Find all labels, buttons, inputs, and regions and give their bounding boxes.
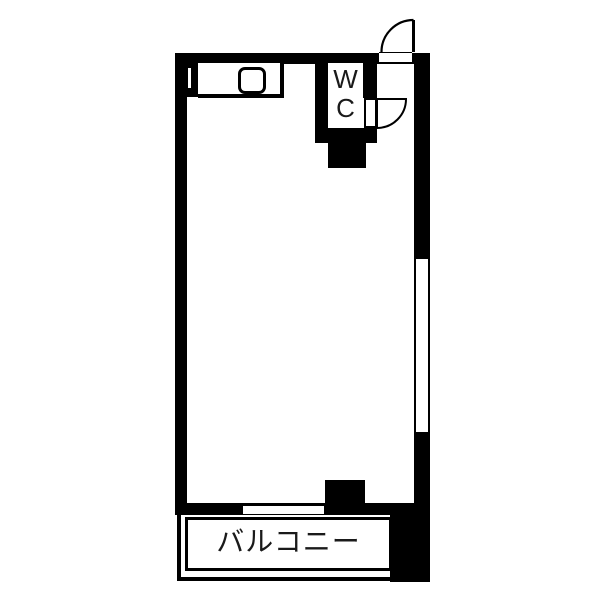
wc-wall-bottom	[315, 128, 377, 143]
wc-door-arc-icon	[377, 99, 406, 128]
kitchen-sink	[238, 67, 266, 94]
wc-room: W C	[328, 63, 363, 128]
wc-duct-pillar	[328, 143, 366, 168]
balcony-opening	[242, 505, 325, 515]
wc-label-line2: C	[336, 94, 355, 123]
pillar	[325, 480, 365, 504]
balcony-label: バルコニー	[216, 520, 360, 560]
window	[416, 259, 428, 432]
wc-door-leaf	[364, 98, 377, 128]
wc-wall-right	[363, 63, 377, 98]
wall-marker	[188, 68, 192, 88]
entrance-door-arc-icon	[382, 20, 414, 52]
floorplan-canvas: W C バルコニー	[0, 0, 600, 600]
wc-label-line1: W	[333, 65, 358, 94]
entrance-opening	[379, 52, 412, 64]
balcony: バルコニー	[185, 517, 392, 571]
left-wall	[175, 53, 187, 515]
